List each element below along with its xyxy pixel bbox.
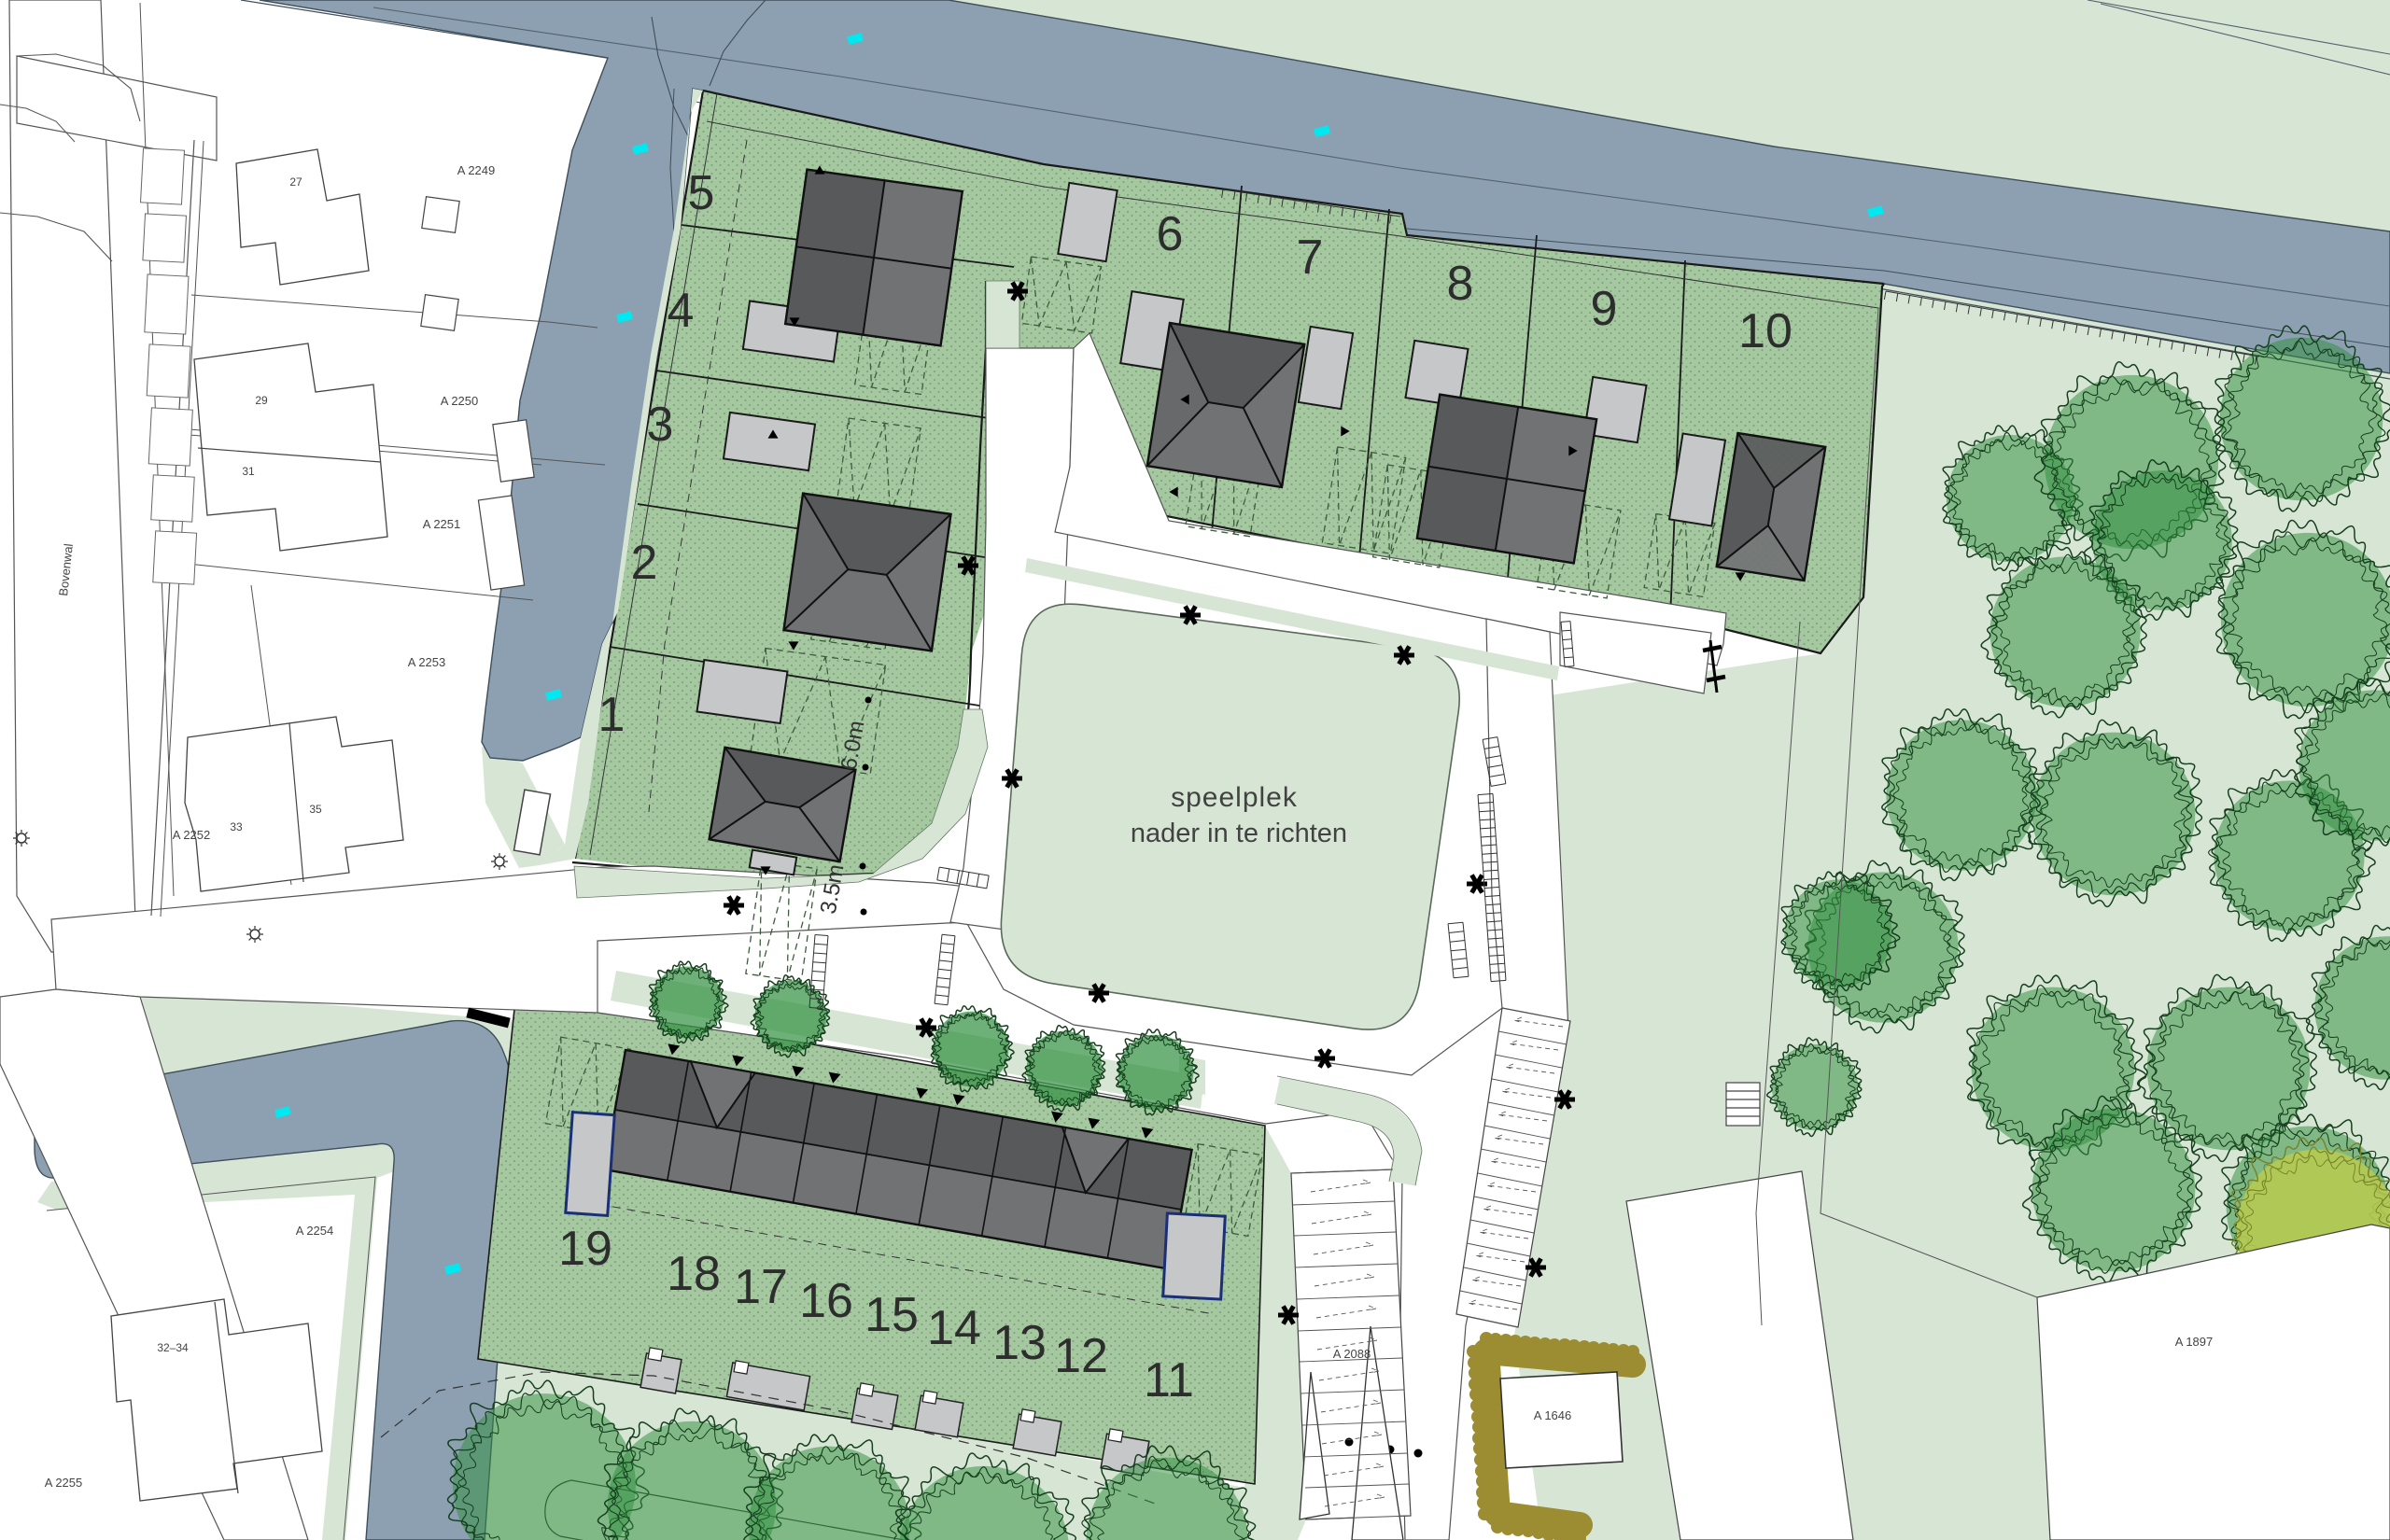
svg-text:A 2253: A 2253	[408, 655, 446, 669]
svg-text:3: 3	[647, 398, 674, 452]
svg-text:19: 19	[558, 1222, 612, 1276]
svg-text:5: 5	[688, 166, 715, 220]
svg-text:17: 17	[734, 1260, 788, 1314]
svg-text:27: 27	[289, 175, 302, 189]
svg-text:15: 15	[865, 1288, 919, 1342]
svg-text:1: 1	[598, 688, 626, 742]
svg-text:A 2251: A 2251	[423, 517, 461, 531]
svg-text:A 1646: A 1646	[1534, 1408, 1572, 1422]
svg-text:12: 12	[1054, 1329, 1108, 1383]
svg-text:31: 31	[242, 465, 255, 478]
svg-text:6: 6	[1157, 207, 1184, 261]
svg-text:2: 2	[631, 536, 658, 590]
svg-text:7: 7	[1297, 231, 1324, 285]
svg-text:16: 16	[799, 1274, 853, 1328]
svg-text:8: 8	[1447, 257, 1474, 311]
svg-text:A 1897: A 1897	[2175, 1335, 2214, 1349]
svg-text:33: 33	[230, 820, 243, 833]
svg-text:A 2254: A 2254	[296, 1224, 334, 1238]
svg-text:14: 14	[927, 1301, 981, 1355]
svg-text:A 2252: A 2252	[173, 828, 211, 842]
svg-text:4: 4	[668, 284, 695, 338]
svg-text:A 2250: A 2250	[441, 394, 479, 408]
svg-text:nader in te richten: nader in te richten	[1131, 819, 1347, 848]
svg-text:18: 18	[667, 1247, 721, 1301]
svg-text:A 2255: A 2255	[45, 1476, 83, 1490]
svg-text:32–34: 32–34	[157, 1341, 189, 1354]
svg-text:speelplek: speelplek	[1171, 782, 1298, 813]
svg-text:13: 13	[992, 1316, 1047, 1370]
svg-text:11: 11	[1144, 1353, 1194, 1407]
svg-text:A 2088: A 2088	[1333, 1347, 1371, 1361]
svg-text:9: 9	[1591, 282, 1618, 336]
svg-text:35: 35	[309, 803, 322, 816]
svg-text:29: 29	[255, 394, 268, 407]
svg-text:10: 10	[1738, 304, 1792, 358]
svg-text:A 2249: A 2249	[457, 163, 496, 177]
